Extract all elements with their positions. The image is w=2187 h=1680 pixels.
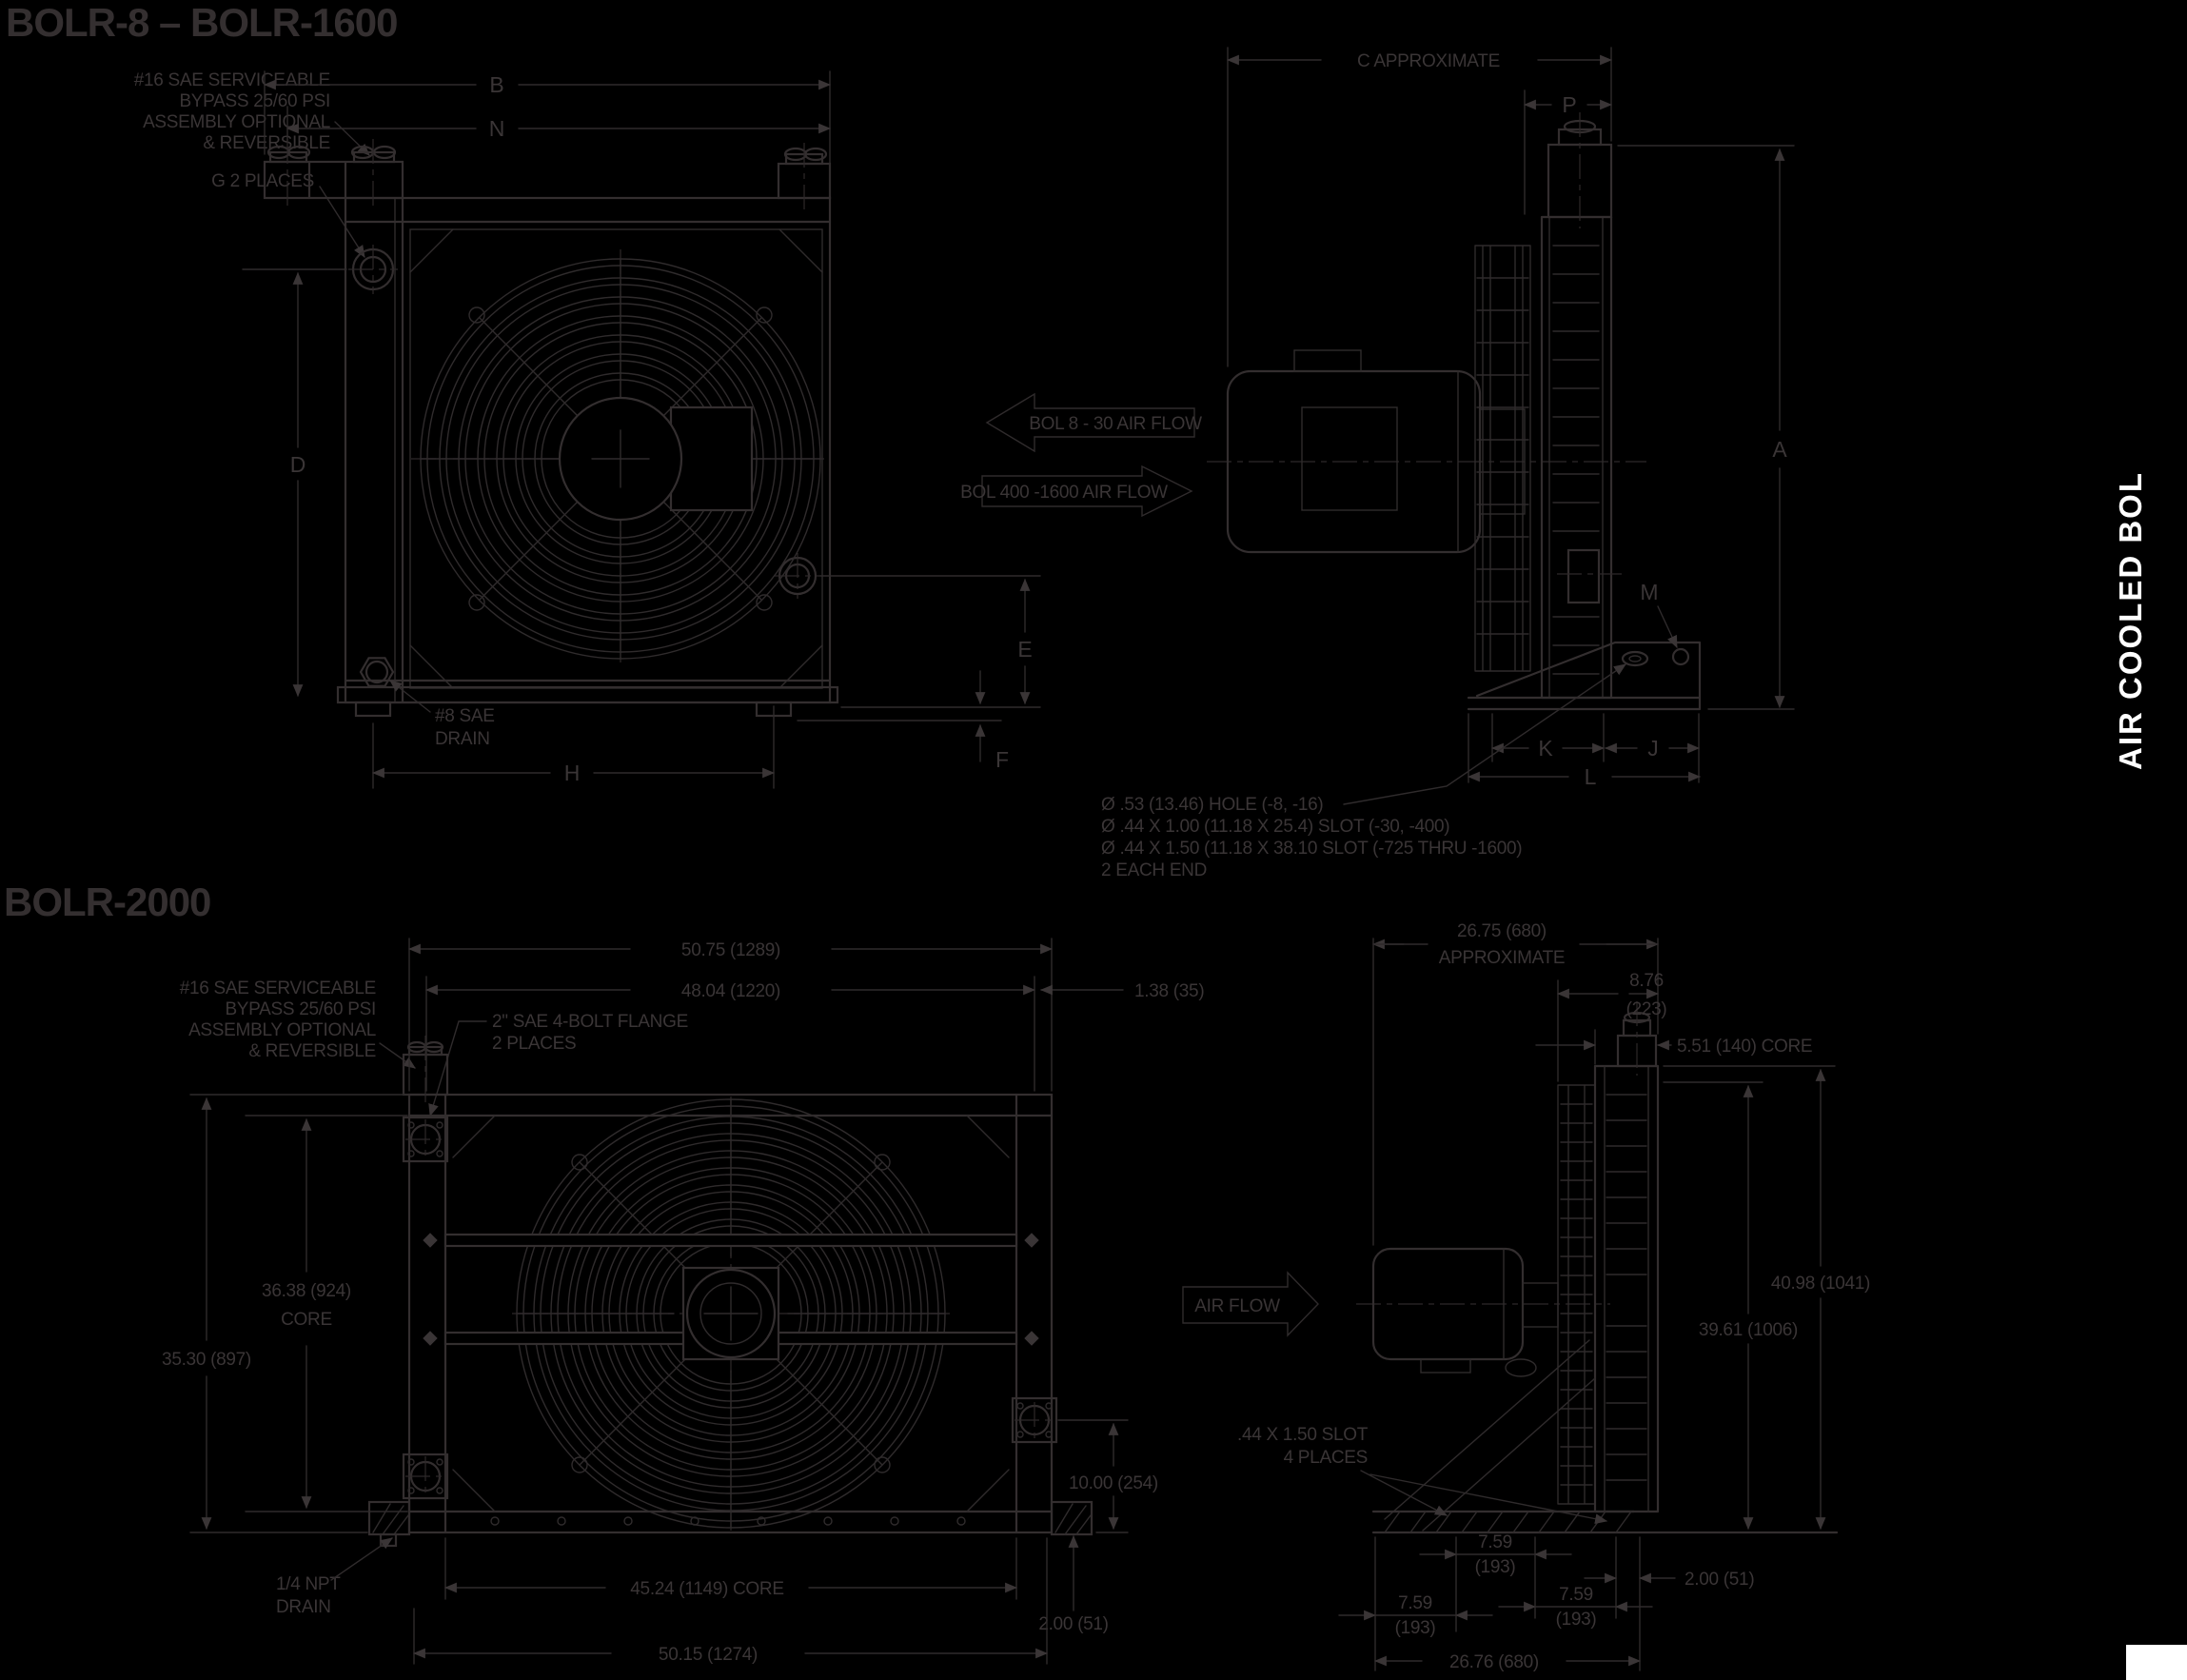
dim-l: L (1585, 764, 1597, 789)
dim-height-overall: 40.98 (1041) (1771, 1274, 1870, 1294)
technical-drawing: BOLR-8 – BOLR-1600 #16 SAE SERVICEABLE B… (0, 0, 2187, 1680)
flange-port-right (1013, 1398, 1056, 1442)
dim-foot-in: 7.59 (1478, 1532, 1512, 1552)
dim-foot-mm: (193) (1475, 1557, 1516, 1577)
dim-base-depth: 26.76 (680) (1449, 1652, 1539, 1672)
note-line: 2" SAE 4-BOLT FLANGE (492, 1012, 688, 1032)
note-line: ASSEMBLY OPTIONAL (143, 112, 330, 132)
dim-foot-mm: (193) (1556, 1610, 1597, 1630)
bottom-drawing: BOLR-2000 #16 SAE SERVICEABLE BYPASS 25/… (4, 880, 1870, 1672)
note-line: DRAIN (435, 729, 490, 749)
dim-base-height: 2.00 (51) (1038, 1614, 1108, 1634)
top-drawing: BOLR-8 – BOLR-1600 #16 SAE SERVICEABLE B… (6, 0, 1794, 880)
note-line: Ø .44 X 1.50 (11.18 X 38.10 SLOT (-725 T… (1101, 839, 1522, 859)
side-port (1548, 112, 1611, 228)
dim-n: N (489, 116, 505, 141)
note-line: G 2 PLACES (211, 171, 314, 191)
bottom-airflow: AIR FLOW (1183, 1273, 1318, 1335)
bottom-fan-guard (424, 1097, 1038, 1531)
note-line: BYPASS 25/60 PSI (225, 999, 376, 1019)
corner-block (2126, 1645, 2187, 1680)
core-edge (1542, 217, 1622, 698)
top-drain-note: #8 SAE DRAIN (390, 681, 495, 749)
top-bypass-note: #16 SAE SERVICEABLE BYPASS 25/60 PSI ASS… (134, 70, 369, 155)
dim-port-height: 10.00 (254) (1069, 1473, 1158, 1493)
bottom-front-view (369, 1036, 1092, 1546)
note-line: Ø .44 X 1.00 (11.18 X 25.4) SLOT (-30, -… (1101, 817, 1449, 837)
dim-h: H (564, 761, 581, 785)
fan-ring-edge (1475, 246, 1530, 671)
dim-depth-2: APPROXIMATE (1439, 948, 1566, 968)
top-side-dims: C APPROXIMATE P A M K J L (1228, 48, 1794, 789)
dim-c: C APPROXIMATE (1357, 51, 1500, 71)
dim-d: D (290, 452, 306, 477)
right-port (778, 143, 830, 211)
side-fitting (775, 553, 820, 599)
edge-tab: AIR COOLED BOL (2113, 471, 2187, 1680)
note-line: .44 X 1.50 SLOT (1237, 1425, 1369, 1445)
dim-shroud-in: 8.76 (1629, 971, 1664, 991)
note-line: ASSEMBLY OPTIONAL (188, 1020, 376, 1040)
dim-core-height-label: CORE (281, 1310, 332, 1330)
dim-base-width: 50.15 (1274) (659, 1645, 758, 1665)
airflow-left-label: BOL 8 - 30 AIR FLOW (1029, 414, 1202, 434)
dim-foot-edge: 2.00 (51) (1685, 1570, 1754, 1590)
dim-k: K (1538, 736, 1553, 761)
drain-fitting (361, 658, 393, 685)
note-line: & REVERSIBLE (248, 1041, 376, 1061)
drawing-page: BOLR-8 – BOLR-1600 #16 SAE SERVICEABLE B… (0, 0, 2187, 1680)
side-base-2 (1373, 1512, 1837, 1532)
dim-core-height: 36.38 (924) (262, 1281, 351, 1301)
note-line: 2 PLACES (492, 1034, 576, 1054)
dim-width-overall: 50.75 (1289) (681, 940, 780, 960)
dim-core-width: 45.24 (1149) CORE (630, 1579, 783, 1599)
dim-shroud-mm: (223) (1626, 999, 1667, 1019)
dim-p: P (1562, 92, 1576, 117)
top-front-view: #8 SAE DRAIN (265, 139, 837, 749)
dim-m: M (1640, 580, 1658, 604)
note-line: 4 PLACES (1284, 1448, 1368, 1468)
dim-height-core-top: 39.61 (1006) (1699, 1320, 1798, 1340)
edge-tab-label: AIR COOLED BOL (2113, 471, 2148, 770)
dim-core-thickness: 5.51 (140) CORE (1677, 1037, 1812, 1057)
dim-j: J (1647, 736, 1659, 761)
side-base (1468, 642, 1700, 709)
top-title: BOLR-8 – BOLR-1600 (6, 0, 397, 45)
bottom-drain-note: 1/4 NPT DRAIN (276, 1538, 392, 1617)
bottom-side-view: AIR FLOW .44 X 1.50 SLOT 4 PLACES (1183, 1001, 1837, 1532)
note-line: & REVERSIBLE (203, 133, 330, 153)
dim-foot-in: 7.59 (1559, 1585, 1593, 1605)
top-side-view (1207, 112, 1700, 709)
note-line: DRAIN (276, 1597, 331, 1617)
dim-b: B (489, 72, 503, 97)
fan-guard (411, 249, 830, 668)
g-port (348, 245, 398, 294)
note-line: #16 SAE SERVICEABLE (180, 978, 376, 998)
note-line: BYPASS 25/60 PSI (179, 91, 330, 111)
fan-ring-edge-2 (1558, 1085, 1595, 1504)
dim-depth-1: 26.75 (680) (1457, 921, 1547, 941)
dim-a: A (1772, 437, 1787, 462)
dim-foot-in: 7.59 (1398, 1593, 1432, 1613)
slot-note: .44 X 1.50 SLOT 4 PLACES (1237, 1425, 1606, 1521)
airflow-right-label: BOL 400 -1600 AIR FLOW (960, 483, 1168, 503)
flange-note: 2" SAE 4-BOLT FLANGE 2 PLACES (430, 1012, 688, 1116)
note-line: #16 SAE SERVICEABLE (134, 70, 330, 90)
core-edge-2 (1595, 1066, 1658, 1512)
dim-offset-right: 1.38 (35) (1134, 981, 1204, 1001)
note-line: 1/4 NPT (276, 1574, 341, 1594)
note-line: Ø .53 (13.46) HOLE (-8, -16) (1101, 795, 1323, 815)
dim-foot-mm: (193) (1395, 1618, 1436, 1638)
bottom-title: BOLR-2000 (4, 880, 210, 924)
bottom-bypass-note: #16 SAE SERVICEABLE BYPASS 25/60 PSI ASS… (180, 978, 415, 1068)
dim-e: E (1017, 637, 1032, 662)
airflow-label: AIR FLOW (1194, 1296, 1280, 1316)
note-line: #8 SAE (435, 706, 495, 726)
dim-width-inner: 48.04 (1220) (681, 981, 780, 1001)
note-line: 2 EACH END (1101, 860, 1207, 880)
dim-f: F (995, 747, 1009, 772)
top-airflow: BOL 8 - 30 AIR FLOW BOL 400 -1600 AIR FL… (960, 394, 1202, 516)
dim-height-left: 35.30 (897) (162, 1350, 251, 1370)
